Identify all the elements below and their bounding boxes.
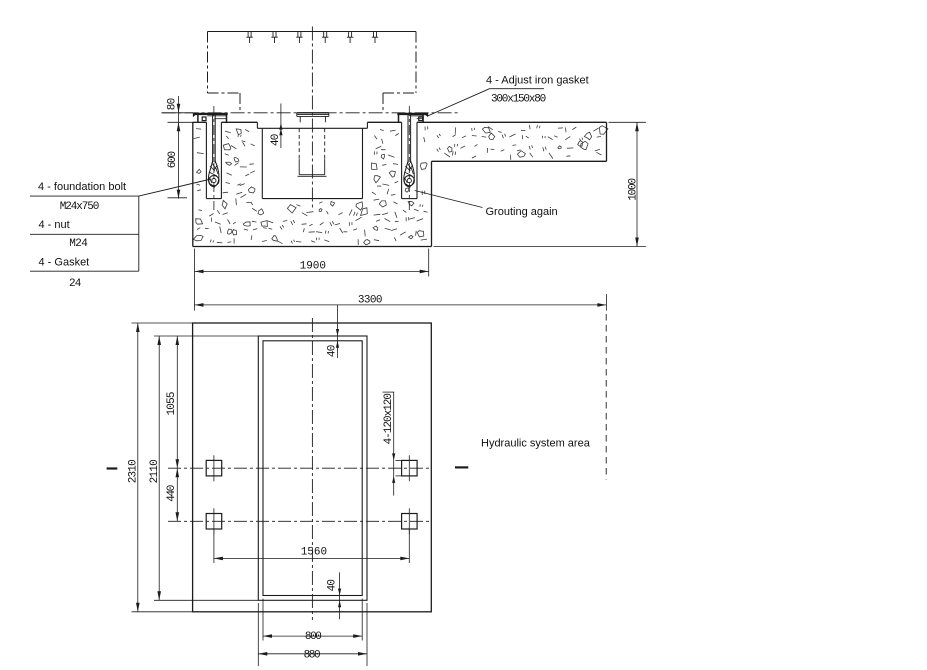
svg-text:1560: 1560 — [301, 547, 327, 559]
svg-text:800: 800 — [305, 631, 321, 643]
svg-text:Grouting again: Grouting again — [486, 206, 558, 218]
svg-text:4 - nut: 4 - nut — [39, 219, 70, 231]
svg-text:4-120x120: 4-120x120 — [383, 394, 395, 445]
svg-text:1900: 1900 — [300, 260, 326, 272]
svg-text:M24: M24 — [69, 238, 88, 250]
svg-text:300x150x80: 300x150x80 — [491, 94, 546, 106]
svg-text:24: 24 — [69, 278, 82, 290]
svg-text:Hydraulic system area: Hydraulic system area — [481, 438, 591, 450]
svg-text:80: 80 — [167, 98, 179, 110]
svg-text:3300: 3300 — [358, 294, 382, 306]
svg-text:1055: 1055 — [166, 392, 178, 415]
svg-text:4 - Adjust iron gasket: 4 - Adjust iron gasket — [486, 74, 589, 86]
svg-text:M24x750: M24x750 — [60, 201, 99, 213]
svg-text:40: 40 — [270, 134, 282, 146]
svg-text:40: 40 — [327, 580, 339, 592]
svg-text:4 - foundation bolt: 4 - foundation bolt — [38, 181, 126, 193]
svg-text:1000: 1000 — [628, 179, 640, 201]
svg-text:4 - Gasket: 4 - Gasket — [39, 256, 90, 268]
svg-text:2110: 2110 — [149, 460, 161, 483]
svg-text:2310: 2310 — [128, 460, 140, 483]
svg-text:600: 600 — [167, 152, 179, 169]
svg-text:880: 880 — [304, 650, 320, 662]
svg-text:440: 440 — [166, 485, 178, 501]
svg-text:40: 40 — [327, 345, 339, 357]
